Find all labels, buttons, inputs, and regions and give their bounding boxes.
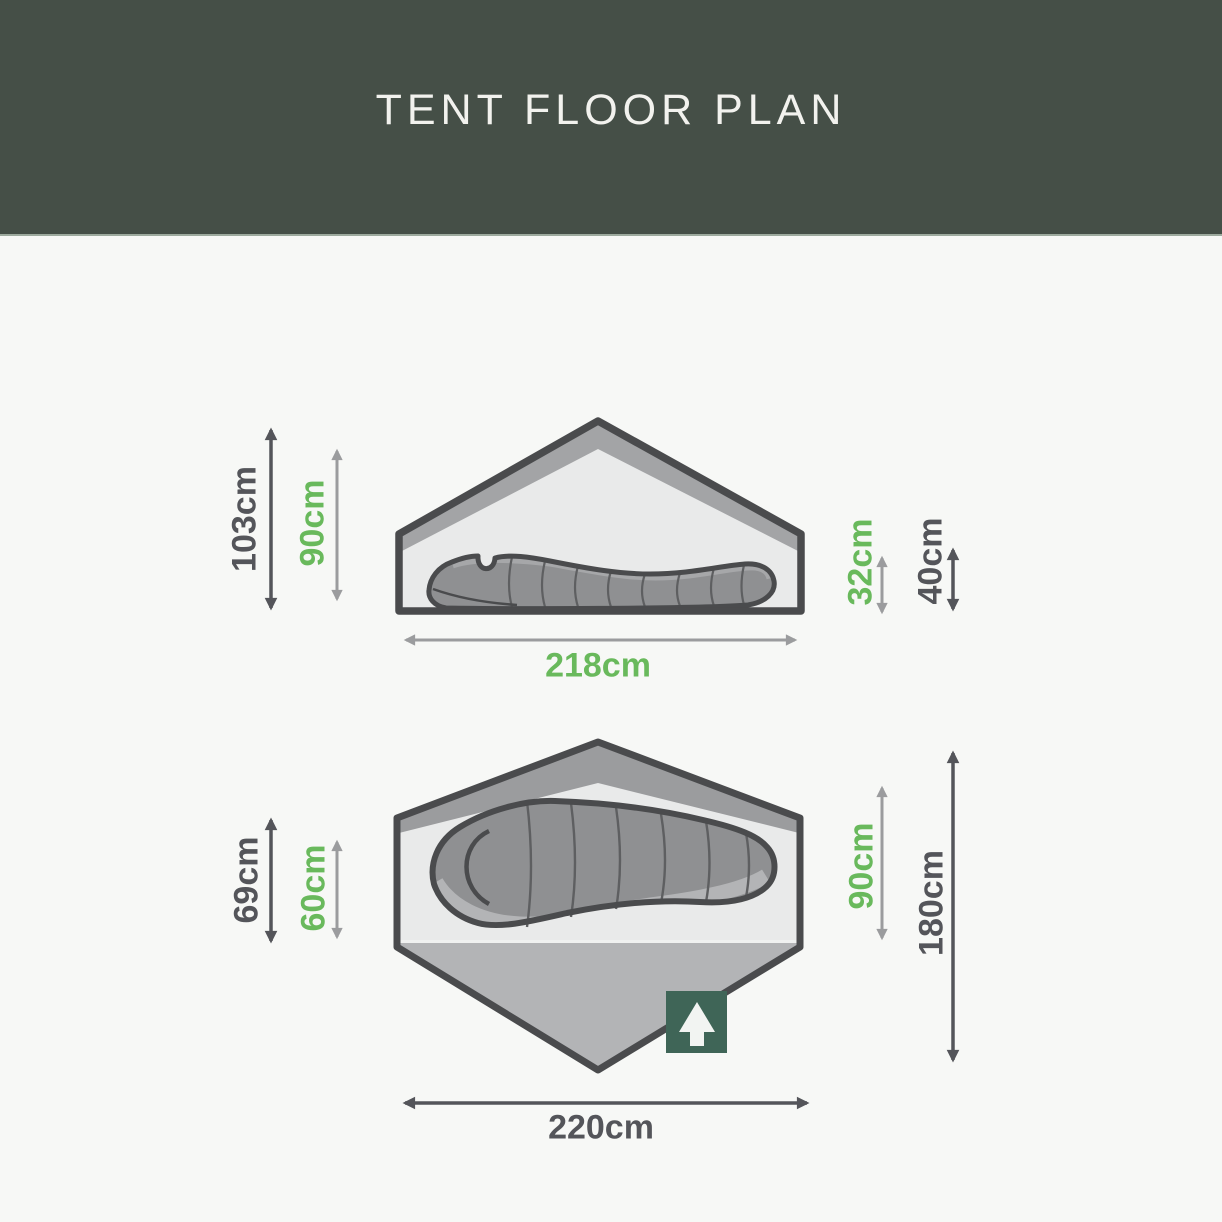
tent-floor-plan-page: TENT FLOOR PLAN (0, 0, 1222, 1222)
plan-outer-porch-depth-label: 69cm (228, 837, 267, 924)
tent-diagram-canvas (0, 0, 1222, 1222)
plan-outer-width-label: 220cm (548, 1109, 654, 1148)
plan-inner-width-label: 90cm (843, 823, 882, 910)
side-outer-width-label: 218cm (545, 647, 651, 686)
tent-floor-plan (396, 742, 802, 1073)
side-inner-height-label: 90cm (294, 480, 333, 567)
plan-outer-length-label: 180cm (913, 850, 952, 956)
side-outer-height-label: 103cm (226, 466, 265, 572)
side-outer-rear-height-label: 40cm (912, 518, 951, 605)
side-inner-rear-height-label: 32cm (842, 519, 881, 606)
tent-side-view (399, 421, 801, 616)
plan-inner-porch-depth-label: 60cm (295, 845, 334, 932)
entrance-badge (666, 991, 727, 1053)
floor-plan-groundsheet (396, 943, 802, 1073)
